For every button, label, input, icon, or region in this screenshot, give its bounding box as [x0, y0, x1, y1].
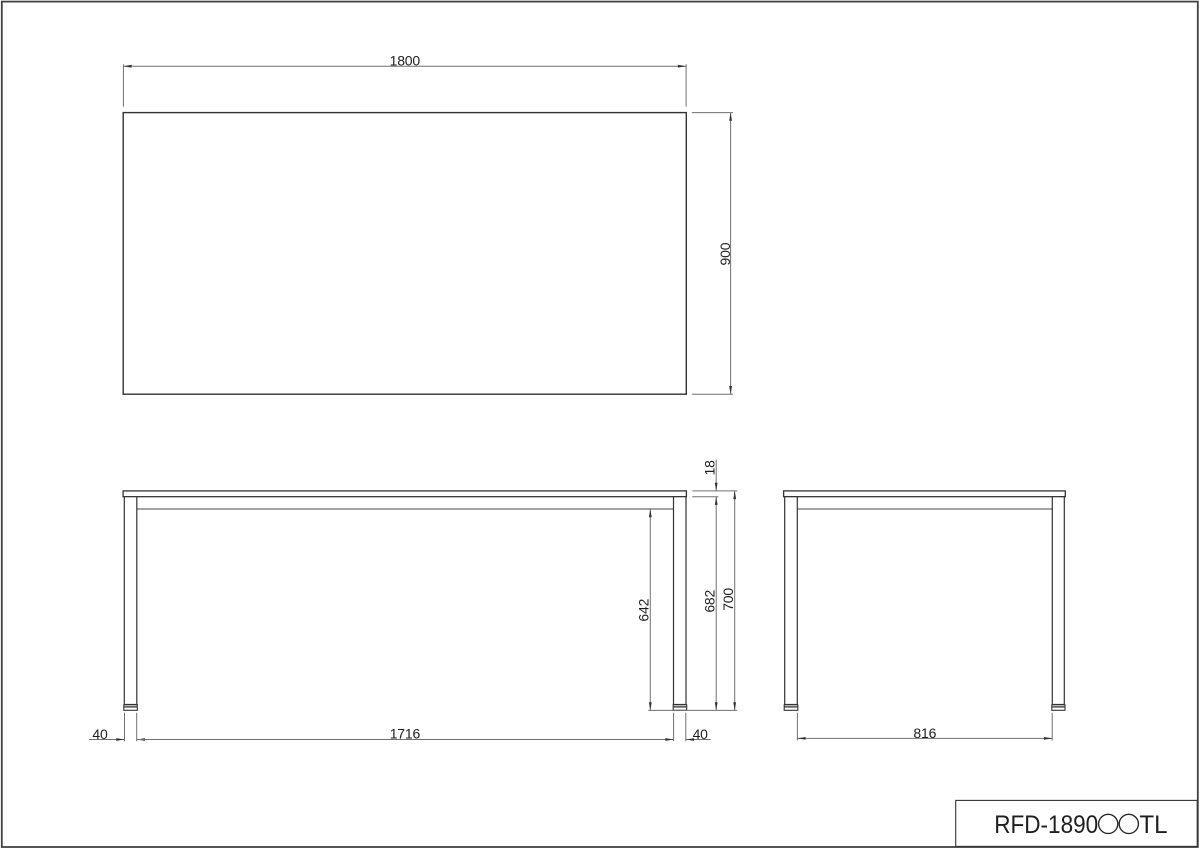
svg-text:40: 40 — [92, 726, 108, 742]
svg-text:RFD-1890: RFD-1890 — [994, 811, 1098, 839]
svg-text:TL: TL — [1139, 811, 1167, 839]
svg-text:816: 816 — [913, 725, 936, 741]
svg-text:1800: 1800 — [390, 52, 421, 68]
svg-text:700: 700 — [720, 588, 736, 611]
svg-text:1716: 1716 — [390, 725, 421, 741]
svg-text:900: 900 — [717, 242, 733, 265]
svg-text:18: 18 — [701, 460, 717, 476]
svg-text:40: 40 — [693, 726, 709, 742]
svg-text:642: 642 — [636, 598, 652, 621]
svg-text:682: 682 — [701, 590, 717, 613]
